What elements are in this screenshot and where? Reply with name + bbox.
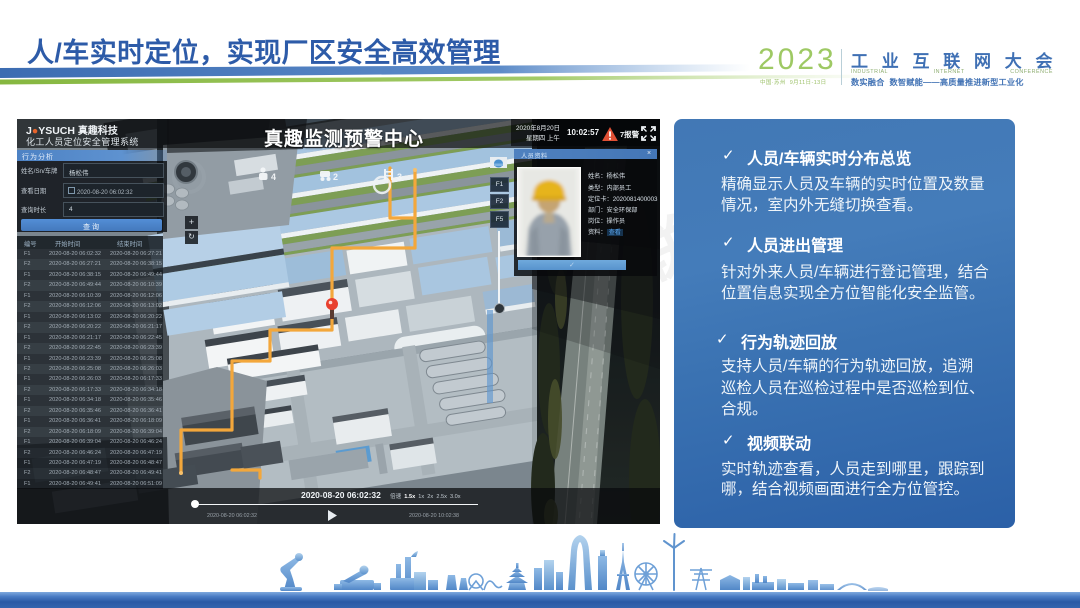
svg-text:3: 3: [397, 172, 402, 182]
svg-text:4: 4: [271, 172, 276, 182]
svg-text:2: 2: [333, 172, 338, 182]
